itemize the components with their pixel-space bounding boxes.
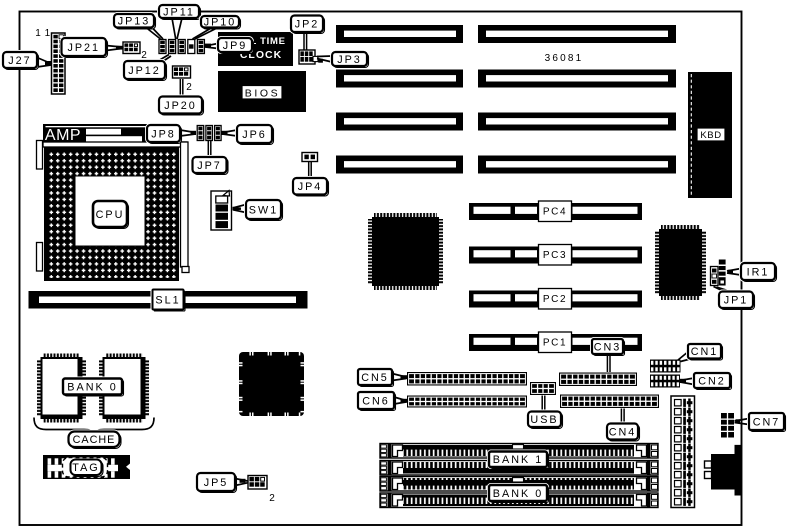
svg-text:CN6: CN6 bbox=[362, 395, 390, 407]
svg-text:BIOS: BIOS bbox=[245, 88, 281, 100]
svg-text:BANK 0: BANK 0 bbox=[67, 381, 117, 393]
svg-text:JP6: JP6 bbox=[242, 129, 267, 141]
svg-text:1 1: 1 1 bbox=[35, 28, 50, 39]
svg-text:CN4: CN4 bbox=[609, 426, 637, 438]
svg-text:CACHE: CACHE bbox=[73, 434, 116, 446]
svg-text:CN3: CN3 bbox=[594, 341, 622, 353]
svg-text:KBD: KBD bbox=[700, 130, 721, 141]
svg-text:SL1: SL1 bbox=[155, 294, 180, 306]
svg-text:JP3: JP3 bbox=[337, 54, 362, 66]
svg-text:PC4: PC4 bbox=[543, 207, 567, 218]
svg-text:BANK 0: BANK 0 bbox=[493, 488, 543, 500]
svg-text:USB: USB bbox=[530, 414, 558, 426]
svg-text:PC1: PC1 bbox=[543, 338, 567, 349]
svg-text:JP7: JP7 bbox=[197, 160, 222, 172]
svg-text:PC3: PC3 bbox=[543, 250, 567, 261]
svg-text:CPU: CPU bbox=[96, 209, 125, 221]
svg-text:IR1: IR1 bbox=[747, 266, 770, 278]
svg-text:JP12: JP12 bbox=[128, 65, 161, 77]
svg-text:2: 2 bbox=[269, 493, 275, 504]
svg-text:PC2: PC2 bbox=[543, 294, 567, 305]
svg-text:BANK 1: BANK 1 bbox=[493, 454, 543, 466]
svg-text:36081: 36081 bbox=[545, 53, 584, 64]
svg-text:JP13: JP13 bbox=[118, 16, 151, 28]
svg-text:JP20: JP20 bbox=[164, 100, 197, 112]
svg-text:JP5: JP5 bbox=[204, 477, 229, 489]
svg-text:JP10: JP10 bbox=[204, 17, 237, 29]
svg-text:JP4: JP4 bbox=[298, 181, 323, 193]
svg-text:SW1: SW1 bbox=[249, 204, 278, 216]
svg-text:JP8: JP8 bbox=[151, 128, 176, 140]
svg-text:CN2: CN2 bbox=[698, 375, 726, 387]
svg-text:CN5: CN5 bbox=[361, 372, 389, 384]
svg-text:JP11: JP11 bbox=[163, 6, 195, 18]
svg-text:CN1: CN1 bbox=[691, 346, 719, 358]
svg-text:2: 2 bbox=[186, 82, 192, 93]
svg-text:TAG: TAG bbox=[72, 462, 99, 474]
svg-text:CN7: CN7 bbox=[753, 416, 781, 428]
svg-text:JP9: JP9 bbox=[223, 40, 248, 52]
svg-text:JP2: JP2 bbox=[295, 19, 320, 31]
svg-text:J27: J27 bbox=[8, 55, 31, 67]
svg-text:JP1: JP1 bbox=[724, 295, 749, 307]
svg-text:JP21: JP21 bbox=[67, 42, 100, 54]
